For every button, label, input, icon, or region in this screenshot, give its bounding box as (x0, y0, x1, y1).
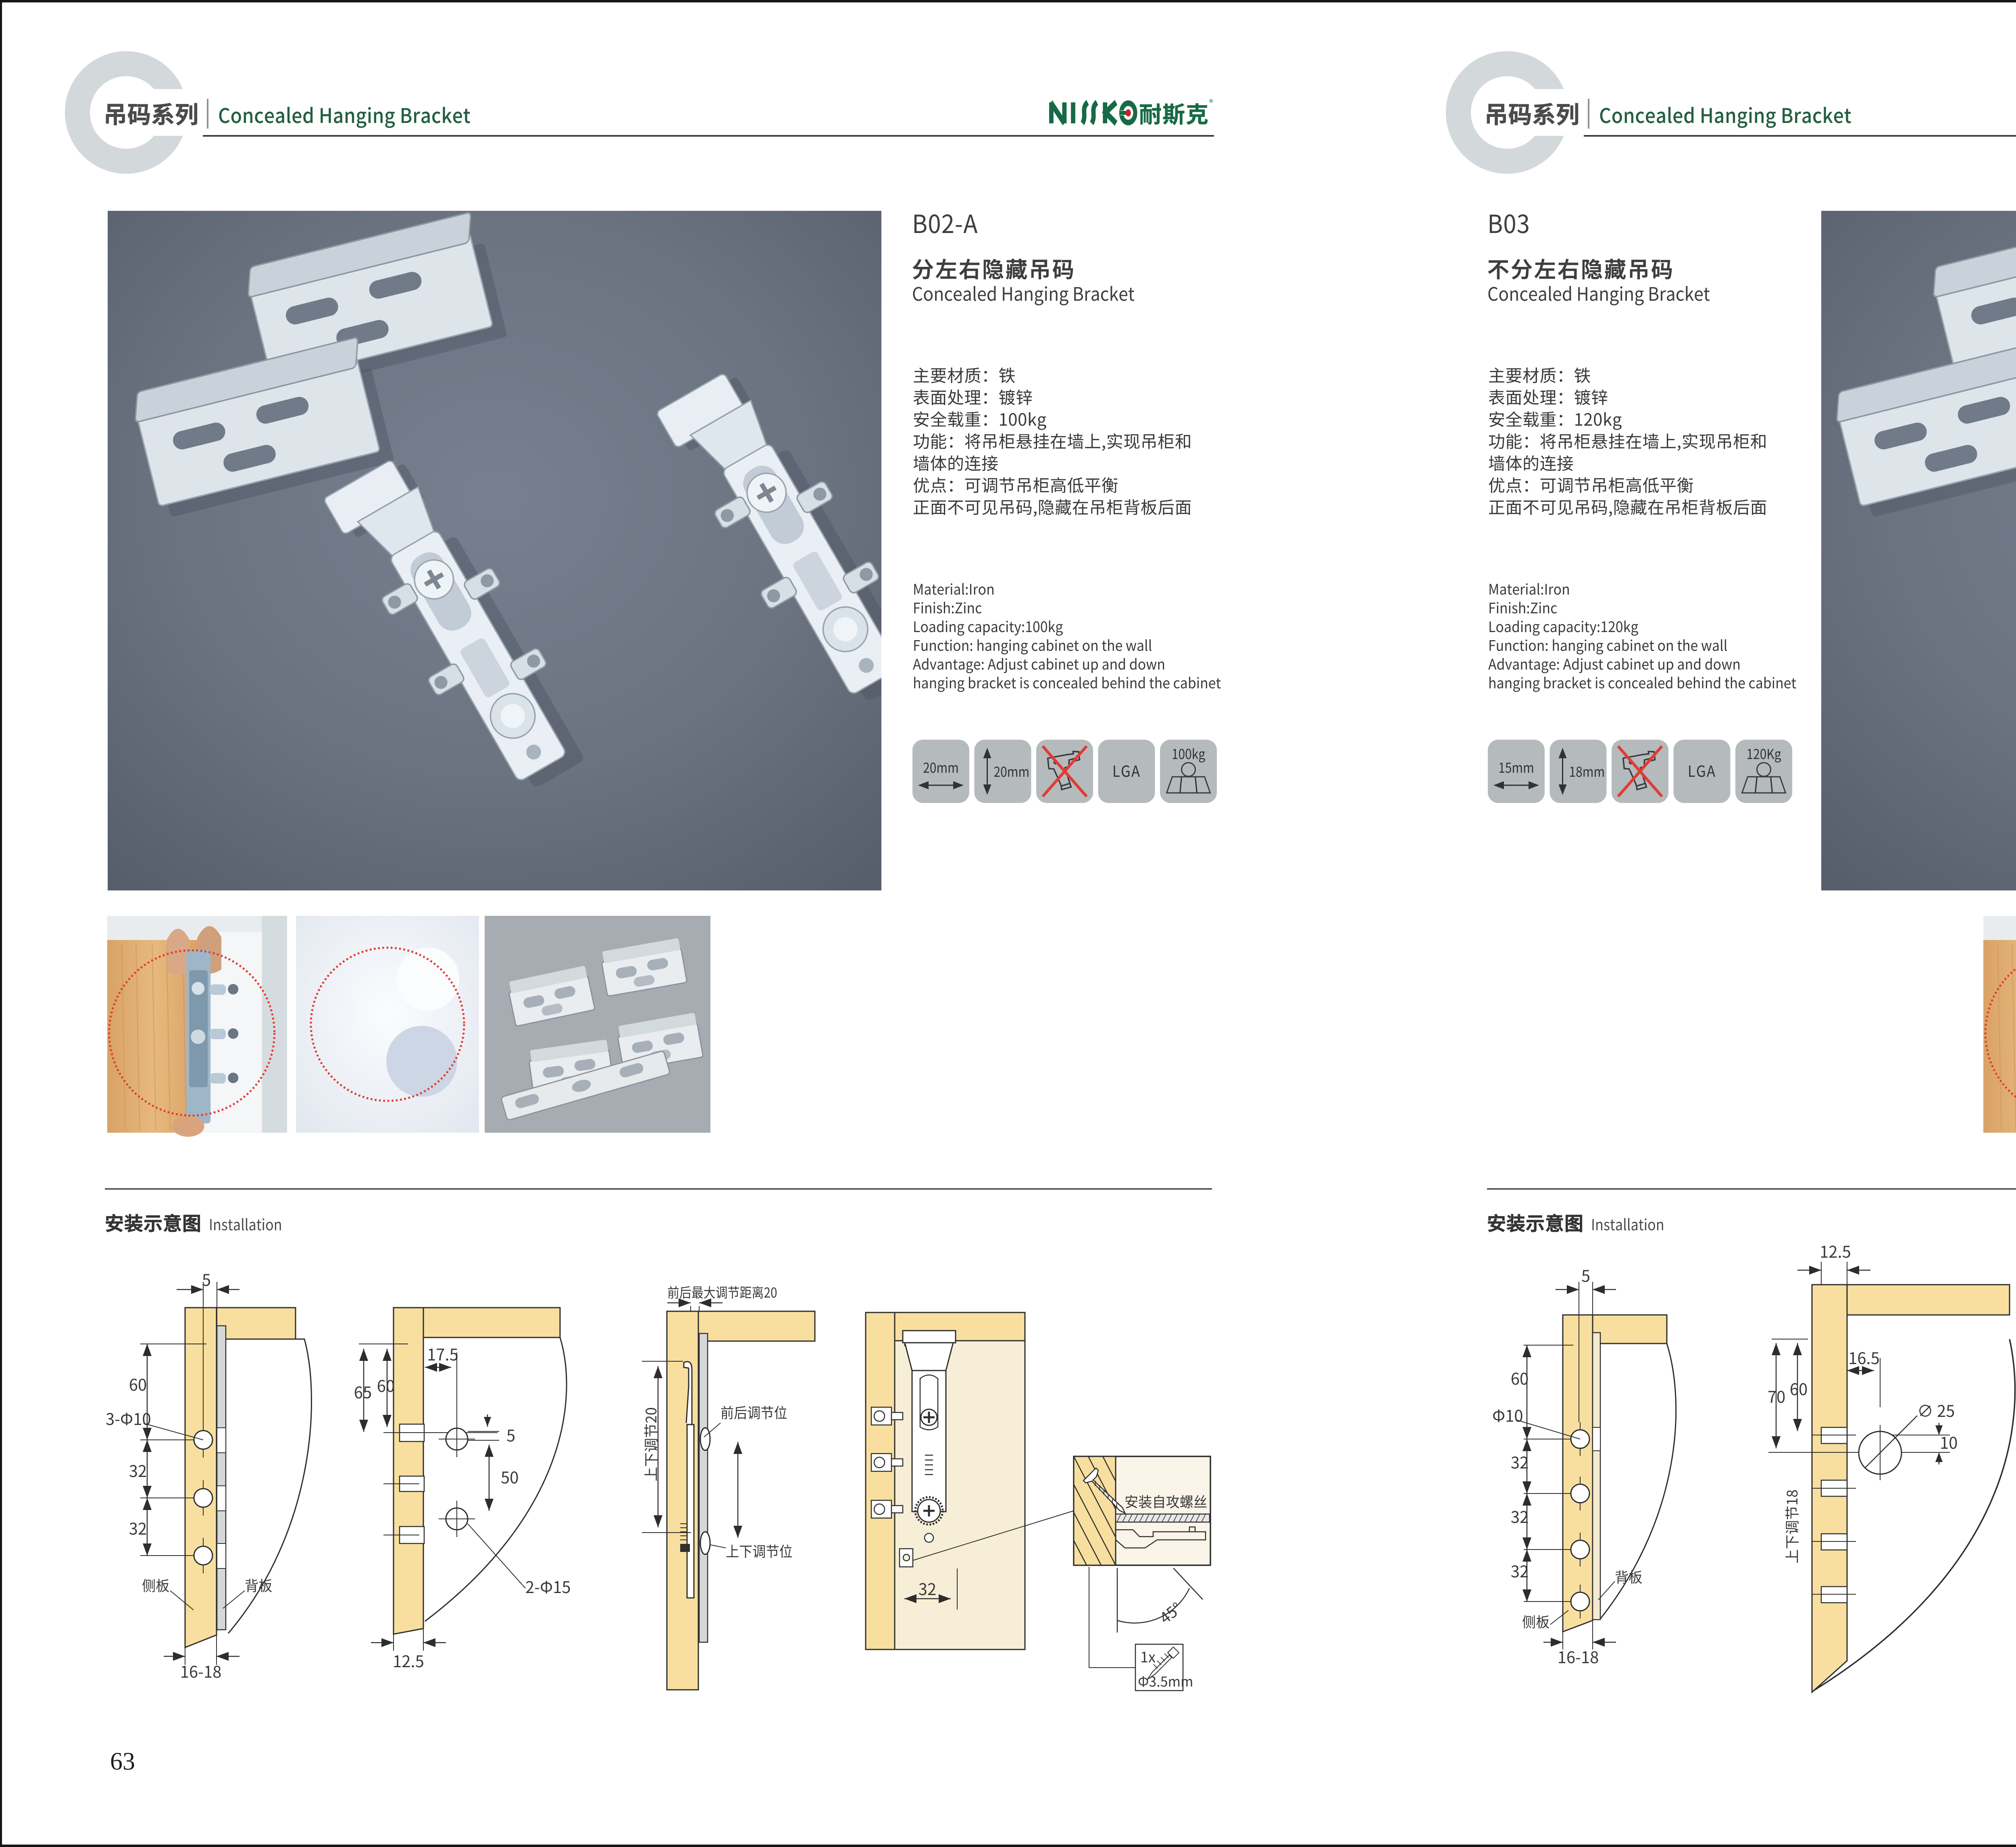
svg-text:63: 63 (110, 1748, 135, 1775)
